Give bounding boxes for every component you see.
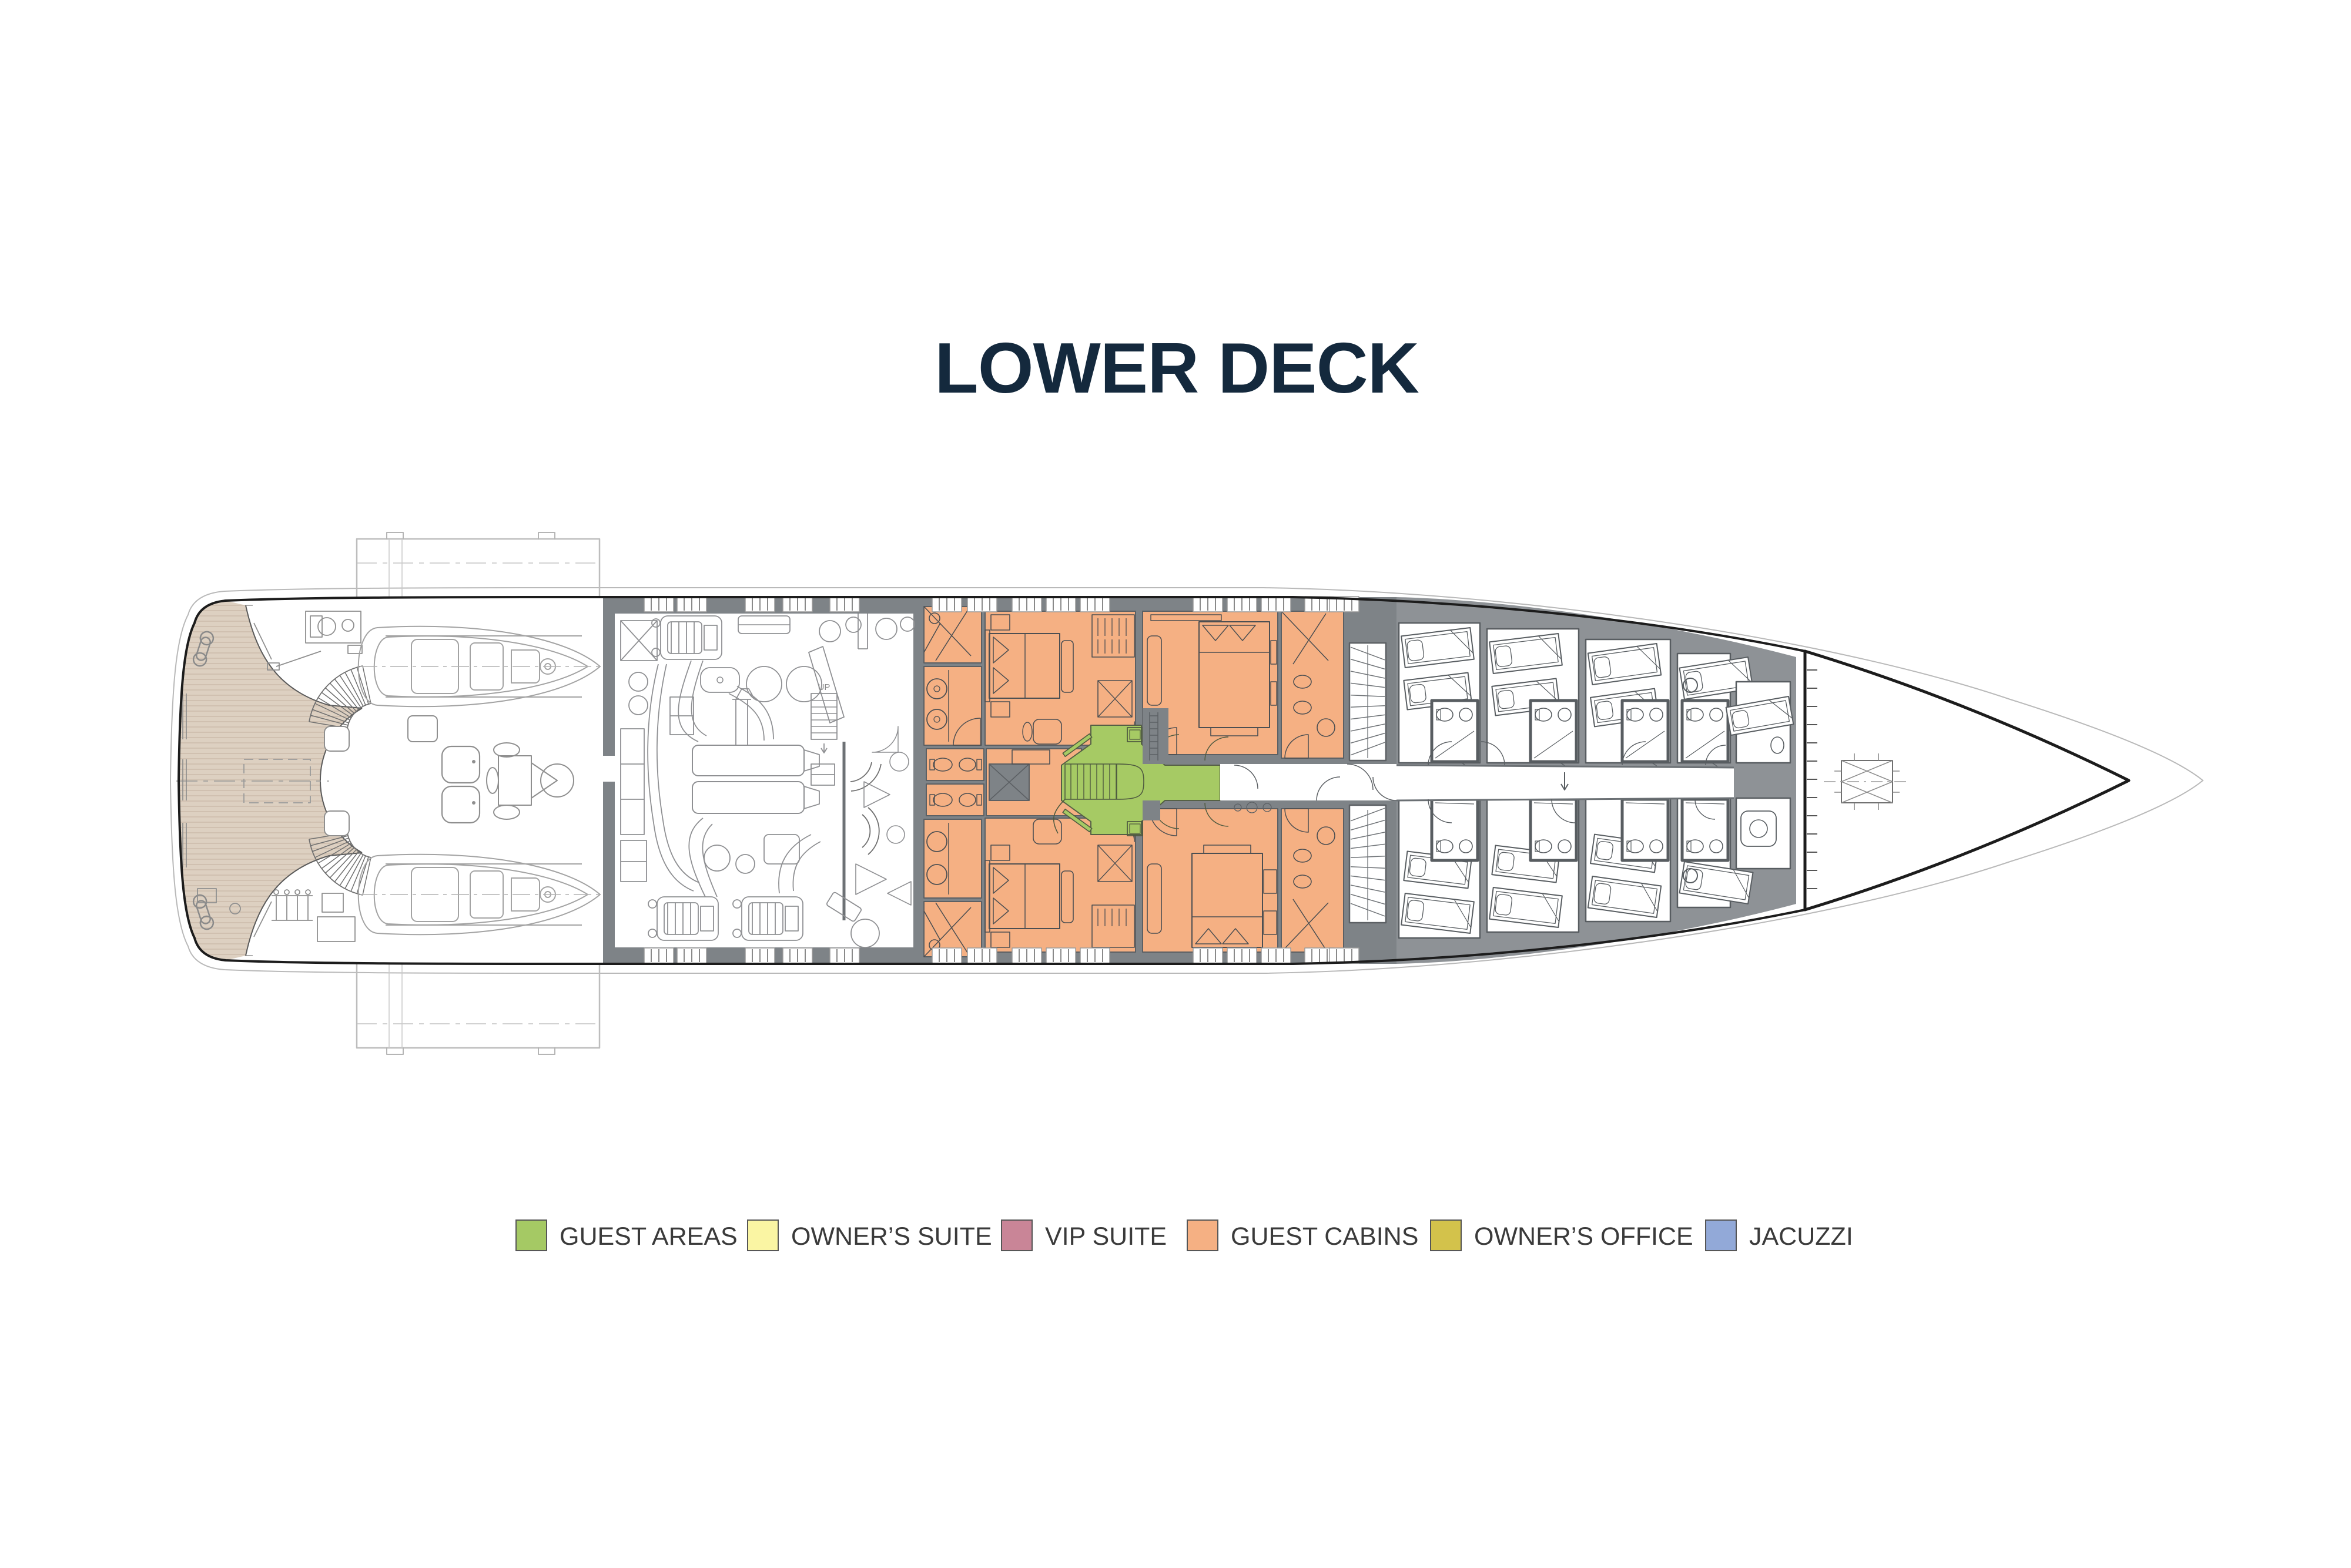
svg-text:GUEST CABINS: GUEST CABINS (1231, 1222, 1418, 1251)
svg-text:LOWER DECK: LOWER DECK (935, 328, 1419, 408)
svg-text:GUEST AREAS: GUEST AREAS (560, 1222, 738, 1251)
svg-text:JACUZZI: JACUZZI (1749, 1222, 1853, 1251)
svg-text:OWNER’S SUITE: OWNER’S SUITE (791, 1222, 992, 1251)
svg-text:OWNER’S OFFICE: OWNER’S OFFICE (1474, 1222, 1693, 1251)
svg-text:UP: UP (818, 682, 830, 692)
svg-text:VIP SUITE: VIP SUITE (1045, 1222, 1167, 1251)
